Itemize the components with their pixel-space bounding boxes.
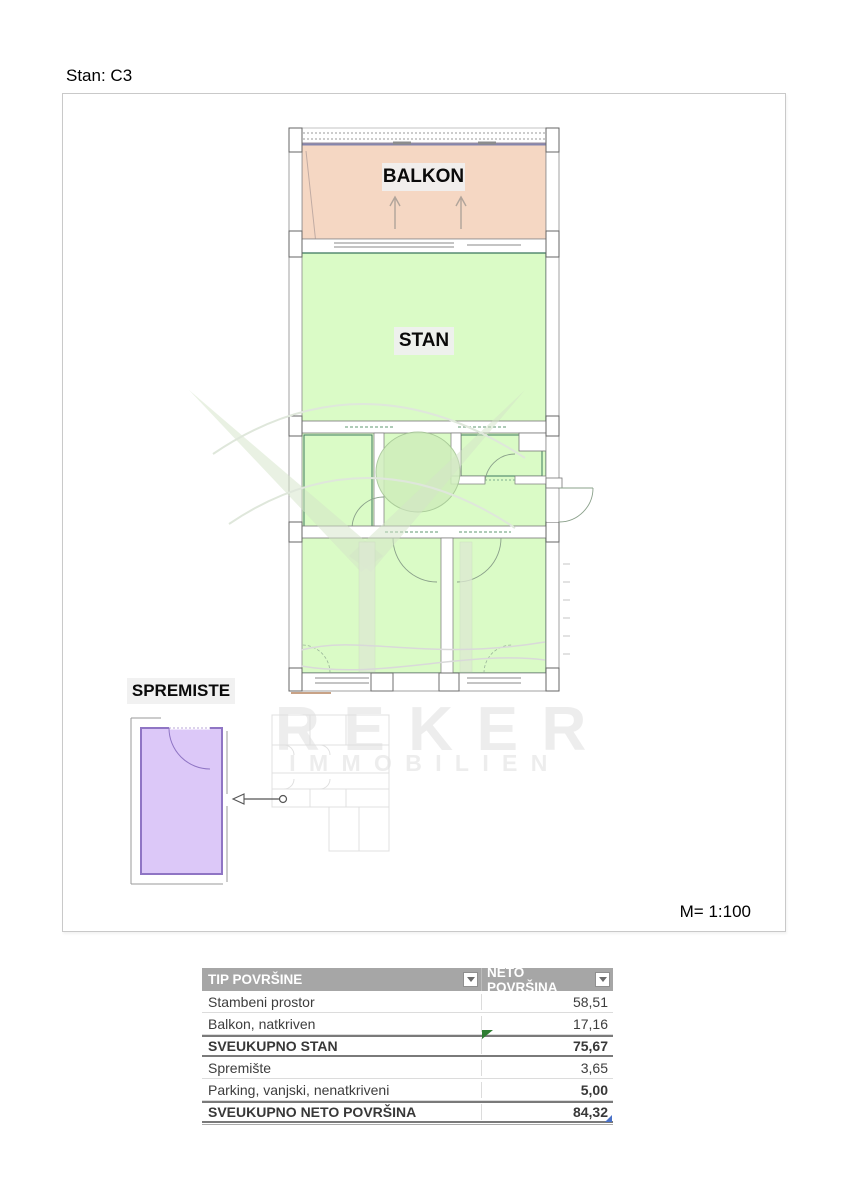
table-row: Parking, vanjski, nenatkriveni 5,00	[202, 1079, 613, 1101]
balcony-label: BALKON	[382, 163, 465, 191]
filter-dropdown-button[interactable]	[595, 972, 610, 987]
scale-label: M= 1:100	[680, 902, 751, 922]
floor-plan-frame: REKER IMMOBILIEN	[62, 93, 786, 932]
table-row-total: SVEUKUPNO STAN 75,67	[202, 1035, 613, 1057]
page-title: Stan: C3	[66, 66, 132, 86]
chevron-down-icon	[599, 977, 607, 982]
area-table: TIP POVRŠINE NETO POVRŠINA Stambeni pros…	[202, 968, 613, 1125]
balcony-railing	[302, 128, 546, 143]
row-label: Spremište	[202, 1060, 482, 1076]
row-value: 84,32	[482, 1104, 613, 1120]
row-label: Stambeni prostor	[202, 994, 482, 1010]
table-row-total: SVEUKUPNO NETO POVRŠINA 84,32	[202, 1101, 613, 1123]
interior-wall-a	[300, 421, 546, 433]
header-label: NETO POVRŠINA	[487, 965, 595, 995]
row-label: SVEUKUPNO STAN	[202, 1038, 482, 1054]
header-label: TIP POVRŠINE	[208, 972, 302, 987]
leader-arrow	[233, 794, 287, 804]
storage-label: SPREMISTE	[127, 678, 235, 704]
table-row: Stambeni prostor 58,51	[202, 991, 613, 1013]
row-value: 17,16	[482, 1016, 613, 1032]
storage-building-outline	[272, 715, 389, 851]
table-row: Balkon, natkriven 17,16	[202, 1013, 613, 1035]
table-row: Spremište 3,65	[202, 1057, 613, 1079]
row-value: 58,51	[482, 994, 613, 1010]
comment-indicator-icon	[482, 1030, 493, 1039]
row-value: 5,00	[482, 1082, 613, 1098]
floor-plan-drawing	[63, 94, 785, 931]
row-label: SVEUKUPNO NETO POVRŠINA	[202, 1104, 482, 1120]
balcony-wall	[302, 239, 546, 253]
page: Stan: C3 REKER IMMOBILIEN	[0, 0, 848, 1200]
table-header-tip-povrsine: TIP POVRŠINE	[202, 968, 482, 991]
selection-corner-icon	[605, 1115, 612, 1122]
row-label: Parking, vanjski, nenatkriveni	[202, 1082, 482, 1098]
row-value: 75,67	[482, 1038, 613, 1054]
apartment-label: STAN	[394, 327, 454, 355]
row-label: Balkon, natkriven	[202, 1016, 482, 1032]
bottom-wall	[289, 673, 559, 693]
table-header-neto-povrsina: NETO POVRŠINA	[482, 968, 613, 991]
table-header-row: TIP POVRŠINE NETO POVRŠINA	[202, 968, 613, 991]
row-value: 3,65	[482, 1060, 613, 1076]
storage-room	[131, 718, 227, 884]
filter-dropdown-button[interactable]	[463, 972, 478, 987]
chevron-down-icon	[467, 977, 475, 982]
